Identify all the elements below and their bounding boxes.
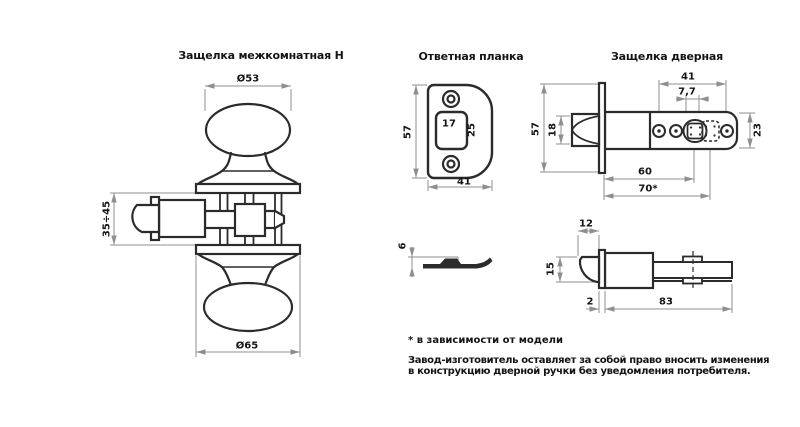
dim-latch-bolt-height: 18	[548, 123, 559, 137]
right-drawing-title: Защелка дверная	[611, 50, 723, 63]
dim-face-thickness: 2	[587, 297, 594, 308]
dim-bolt-length: 12	[579, 219, 593, 230]
dim-knob-bottom-diameter: Ø65	[236, 341, 258, 352]
model-footnote: * в зависимости от модели	[408, 335, 563, 346]
dim-body-length: 83	[659, 297, 673, 308]
dim-latch-backset-70: 70*	[638, 184, 657, 195]
disclaimer-line-2: в конструкцию дверной ручки без уведомле…	[408, 366, 750, 377]
dim-knob-top-diameter: Ø53	[237, 74, 259, 85]
middle-drawing-title: Ответная планка	[418, 50, 523, 63]
dim-plate-width: 41	[457, 177, 471, 188]
dim-latch-square-hole: 7,7	[678, 87, 696, 98]
tubular-latch-top-drawing	[580, 250, 732, 289]
dim-latch-face-height: 57	[531, 122, 542, 136]
dim-bolt-width: 15	[546, 262, 557, 276]
dim-latch-backset-60: 60	[638, 167, 652, 178]
knob-latch-drawing	[132, 104, 300, 331]
dim-latch-holes-span: 41	[681, 72, 695, 83]
dim-plate-hole-height: 25	[467, 123, 478, 137]
dim-plate-hole-width: 17	[442, 119, 456, 130]
left-drawing-title: Защелка межкомнатная Н	[178, 49, 343, 62]
dim-plate-thickness: 6	[398, 243, 409, 250]
tubular-latch-side-drawing	[572, 83, 737, 173]
disclaimer-line-1: Завод-изготовитель оставляет за собой пр…	[408, 355, 769, 366]
dim-latch-tube-height: 23	[753, 123, 764, 137]
technical-drawing-sheet: Защелка межкомнатная Н Ответная планка З…	[0, 0, 800, 427]
dim-plate-height: 57	[403, 125, 414, 139]
dim-door-thickness: 35÷45	[102, 201, 113, 237]
